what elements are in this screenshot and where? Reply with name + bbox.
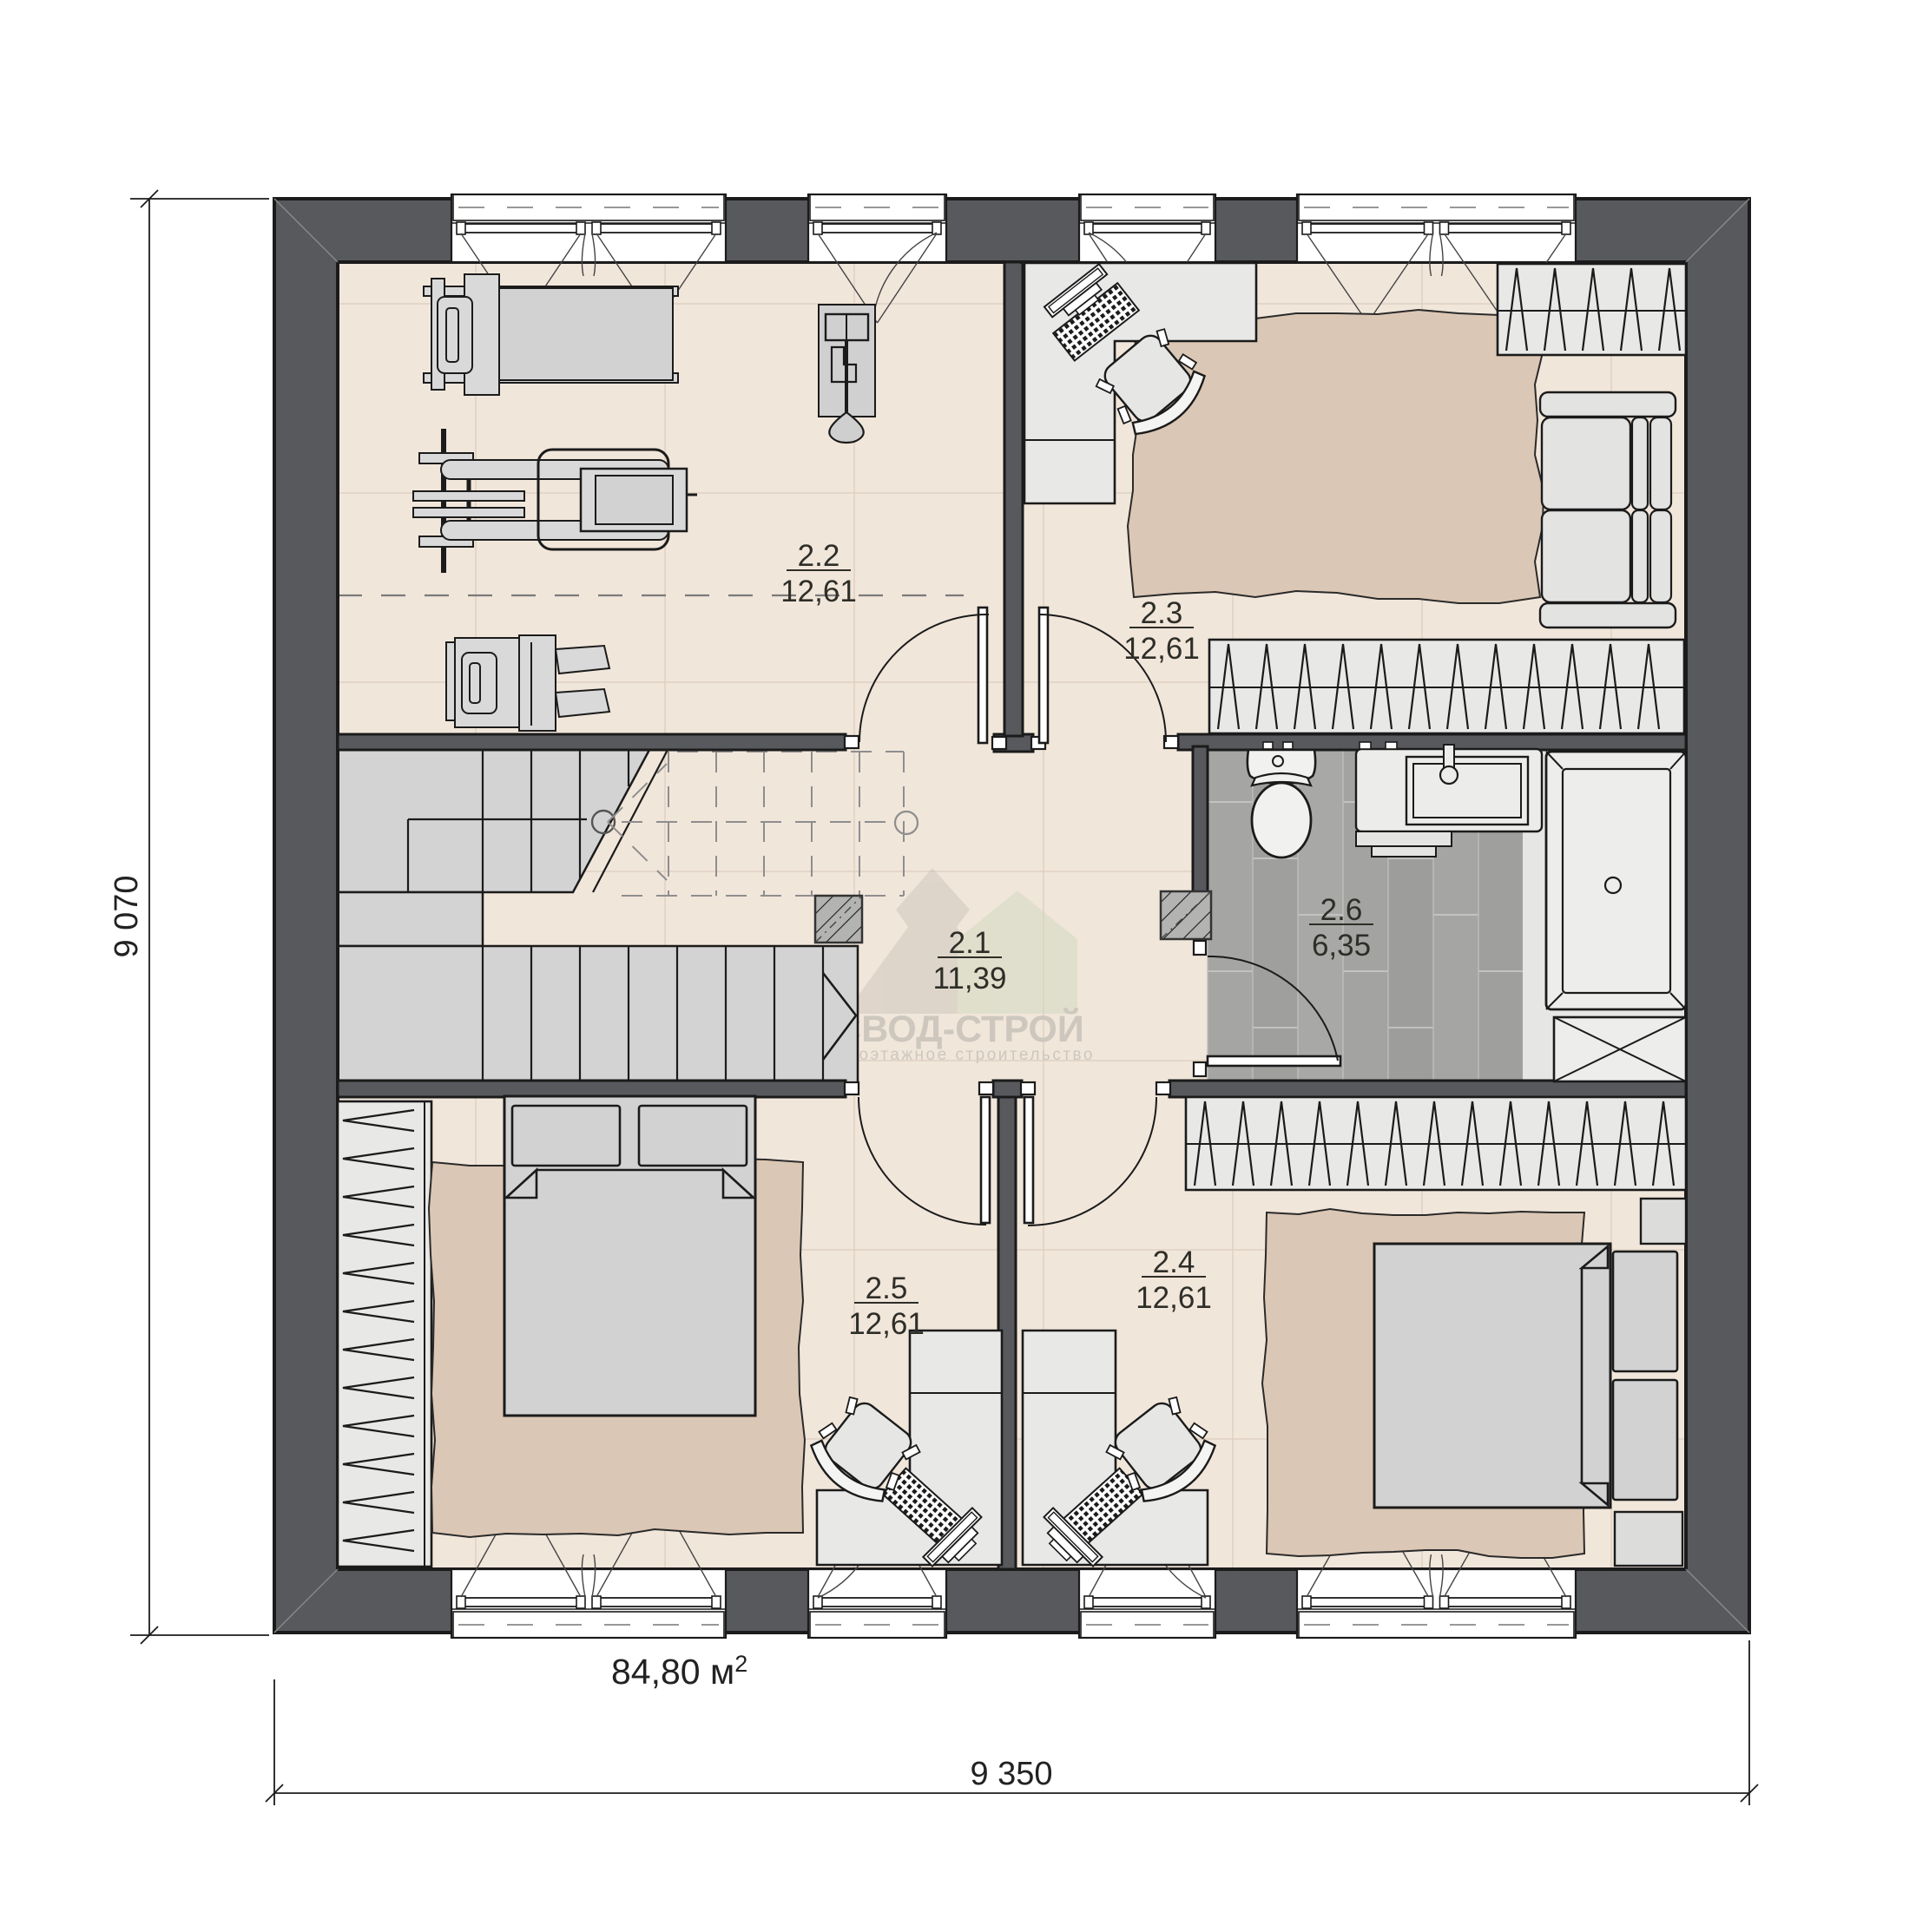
svg-text:12,61: 12,61 xyxy=(780,575,857,608)
svg-text:6,35: 6,35 xyxy=(1312,929,1371,963)
svg-text:12,61: 12,61 xyxy=(848,1307,925,1341)
svg-text:2.2: 2.2 xyxy=(798,539,840,573)
svg-text:84,80 м2: 84,80 м2 xyxy=(611,1651,747,1692)
svg-text:12,61: 12,61 xyxy=(1123,632,1200,666)
svg-text:2.6: 2.6 xyxy=(1320,893,1363,927)
svg-text:9 350: 9 350 xyxy=(970,1756,1052,1792)
svg-text:СВОД-СТРОЙ: СВОД-СТРОЙ xyxy=(834,1008,1084,1050)
svg-text:2.3: 2.3 xyxy=(1141,596,1183,630)
svg-text:малоэтажное строительство: малоэтажное строительство xyxy=(822,1046,1095,1064)
svg-text:11,39: 11,39 xyxy=(933,962,1007,996)
svg-text:2.4: 2.4 xyxy=(1153,1245,1195,1279)
svg-text:2.1: 2.1 xyxy=(949,926,991,960)
svg-text:9 070: 9 070 xyxy=(109,875,145,957)
svg-text:2.5: 2.5 xyxy=(866,1272,908,1305)
svg-text:12,61: 12,61 xyxy=(1136,1281,1212,1315)
